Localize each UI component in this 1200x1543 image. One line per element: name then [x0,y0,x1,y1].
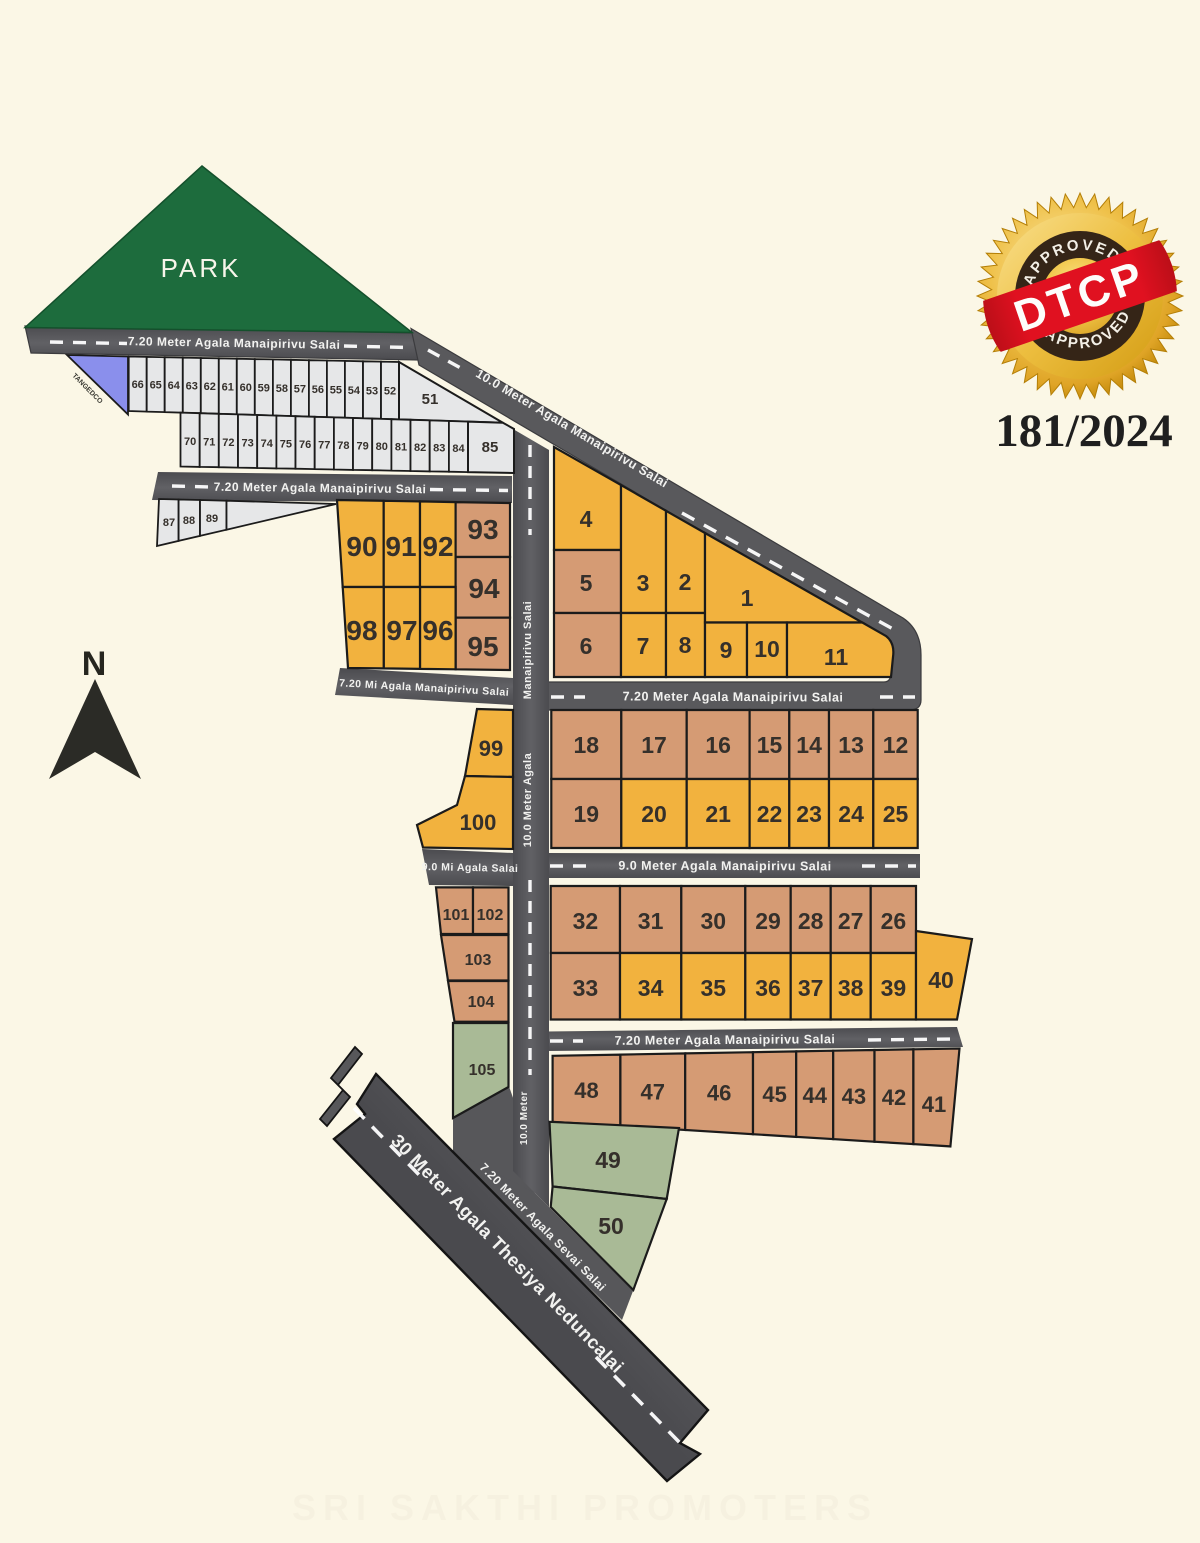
svg-text:78: 78 [337,440,349,452]
svg-text:57: 57 [294,383,306,395]
svg-text:1: 1 [741,585,754,611]
svg-text:8: 8 [679,632,692,658]
svg-text:48: 48 [574,1078,598,1103]
svg-text:6: 6 [580,633,593,659]
svg-text:98: 98 [346,615,377,646]
svg-text:65: 65 [150,380,162,392]
svg-text:64: 64 [168,380,181,392]
svg-text:100: 100 [460,810,497,835]
svg-text:79: 79 [356,440,368,452]
svg-text:50: 50 [598,1213,624,1239]
svg-text:31: 31 [638,908,664,934]
svg-text:95: 95 [467,631,498,662]
svg-text:73: 73 [241,438,253,450]
svg-text:94: 94 [468,573,500,604]
svg-text:25: 25 [883,801,909,827]
svg-text:104: 104 [468,994,495,1011]
svg-text:11: 11 [824,644,849,670]
svg-text:27: 27 [838,908,864,934]
svg-text:14: 14 [796,732,822,758]
svg-text:96: 96 [422,615,453,646]
svg-text:23: 23 [796,801,822,827]
svg-text:56: 56 [312,384,324,396]
svg-text:52: 52 [384,386,396,398]
svg-text:10.0 Meter Agala: 10.0 Meter Agala [522,752,534,847]
svg-text:24: 24 [838,801,864,827]
svg-text:88: 88 [183,515,195,527]
svg-text:46: 46 [707,1081,731,1106]
svg-text:93: 93 [467,514,498,545]
svg-text:26: 26 [881,908,907,934]
svg-text:5: 5 [580,570,593,596]
svg-text:75: 75 [280,439,292,451]
svg-text:9: 9 [720,637,733,663]
svg-text:55: 55 [330,384,342,396]
svg-text:7.20 Meter Agala Manaipirivu S: 7.20 Meter Agala Manaipirivu Salai [615,1032,836,1048]
svg-text:4: 4 [580,506,593,532]
svg-text:30: 30 [701,908,727,934]
svg-text:33: 33 [573,975,599,1001]
svg-text:76: 76 [299,439,311,451]
svg-text:40: 40 [928,967,954,993]
svg-text:70: 70 [184,436,196,448]
svg-text:16: 16 [705,732,731,758]
svg-text:71: 71 [203,437,215,449]
svg-text:39: 39 [881,975,907,1001]
svg-text:41: 41 [922,1092,946,1117]
svg-text:SRI SAKTHI PROMOTERS: SRI SAKTHI PROMOTERS [292,1487,878,1528]
svg-text:35: 35 [701,975,727,1001]
svg-text:84: 84 [452,443,465,455]
svg-text:45: 45 [762,1082,786,1107]
svg-text:105: 105 [469,1062,496,1079]
svg-text:54: 54 [348,385,361,397]
svg-text:181/2024: 181/2024 [995,405,1173,457]
svg-text:N: N [82,645,107,683]
svg-text:37: 37 [798,975,824,1001]
svg-text:49: 49 [595,1147,621,1173]
svg-text:89: 89 [206,513,218,525]
svg-text:3: 3 [637,570,650,596]
svg-text:51: 51 [422,391,439,408]
svg-text:80: 80 [376,441,388,453]
svg-text:91: 91 [385,531,416,562]
svg-text:53: 53 [366,385,378,397]
svg-text:9.0 Meter Agala Manaipirivu Sa: 9.0 Meter Agala Manaipirivu Salai [618,859,831,874]
svg-text:101: 101 [443,907,470,924]
svg-text:PARK: PARK [161,253,242,283]
svg-text:60: 60 [240,382,252,394]
svg-text:2: 2 [679,569,692,595]
svg-text:83: 83 [433,442,445,454]
svg-text:43: 43 [842,1084,866,1109]
svg-text:19: 19 [574,801,600,827]
svg-text:59: 59 [258,383,270,395]
svg-text:15: 15 [757,732,783,758]
svg-text:12: 12 [883,732,909,758]
svg-text:74: 74 [261,438,274,450]
svg-text:17: 17 [641,732,667,758]
svg-text:36: 36 [755,975,781,1001]
svg-text:38: 38 [838,975,864,1001]
svg-text:18: 18 [574,732,600,758]
svg-text:9.0 Mi Agala Salai: 9.0 Mi Agala Salai [422,861,519,875]
svg-text:Manaipirivu Salai: Manaipirivu Salai [522,601,534,699]
svg-text:92: 92 [422,531,453,562]
svg-text:85: 85 [482,439,499,456]
svg-text:77: 77 [318,440,330,452]
svg-text:7: 7 [637,633,650,659]
svg-text:21: 21 [705,801,731,827]
svg-text:34: 34 [638,975,664,1001]
svg-text:32: 32 [573,908,599,934]
svg-text:7.20 Meter Agala Manaipirivu S: 7.20 Meter Agala Manaipirivu Salai [623,689,844,704]
svg-text:81: 81 [395,441,407,453]
svg-text:58: 58 [276,383,288,395]
svg-text:10: 10 [754,636,780,662]
svg-text:42: 42 [882,1085,906,1110]
svg-text:62: 62 [204,381,216,393]
svg-text:28: 28 [798,908,824,934]
svg-text:29: 29 [755,908,781,934]
svg-text:44: 44 [802,1083,827,1108]
svg-text:97: 97 [386,615,417,646]
svg-text:72: 72 [222,437,234,449]
svg-text:87: 87 [163,517,175,529]
svg-text:7.20 Meter Agala Manaipirivu S: 7.20 Meter Agala Manaipirivu Salai [214,480,427,497]
svg-text:63: 63 [186,381,198,393]
svg-text:102: 102 [477,907,504,924]
svg-text:13: 13 [838,732,864,758]
svg-text:10.0 Meter: 10.0 Meter [519,1091,530,1145]
svg-text:47: 47 [641,1079,665,1104]
svg-text:99: 99 [479,736,503,761]
svg-text:66: 66 [132,379,144,391]
svg-text:61: 61 [222,382,234,394]
svg-text:82: 82 [414,442,426,454]
svg-text:20: 20 [641,801,667,827]
svg-text:90: 90 [346,531,377,562]
svg-text:22: 22 [757,801,783,827]
svg-text:103: 103 [465,952,492,969]
